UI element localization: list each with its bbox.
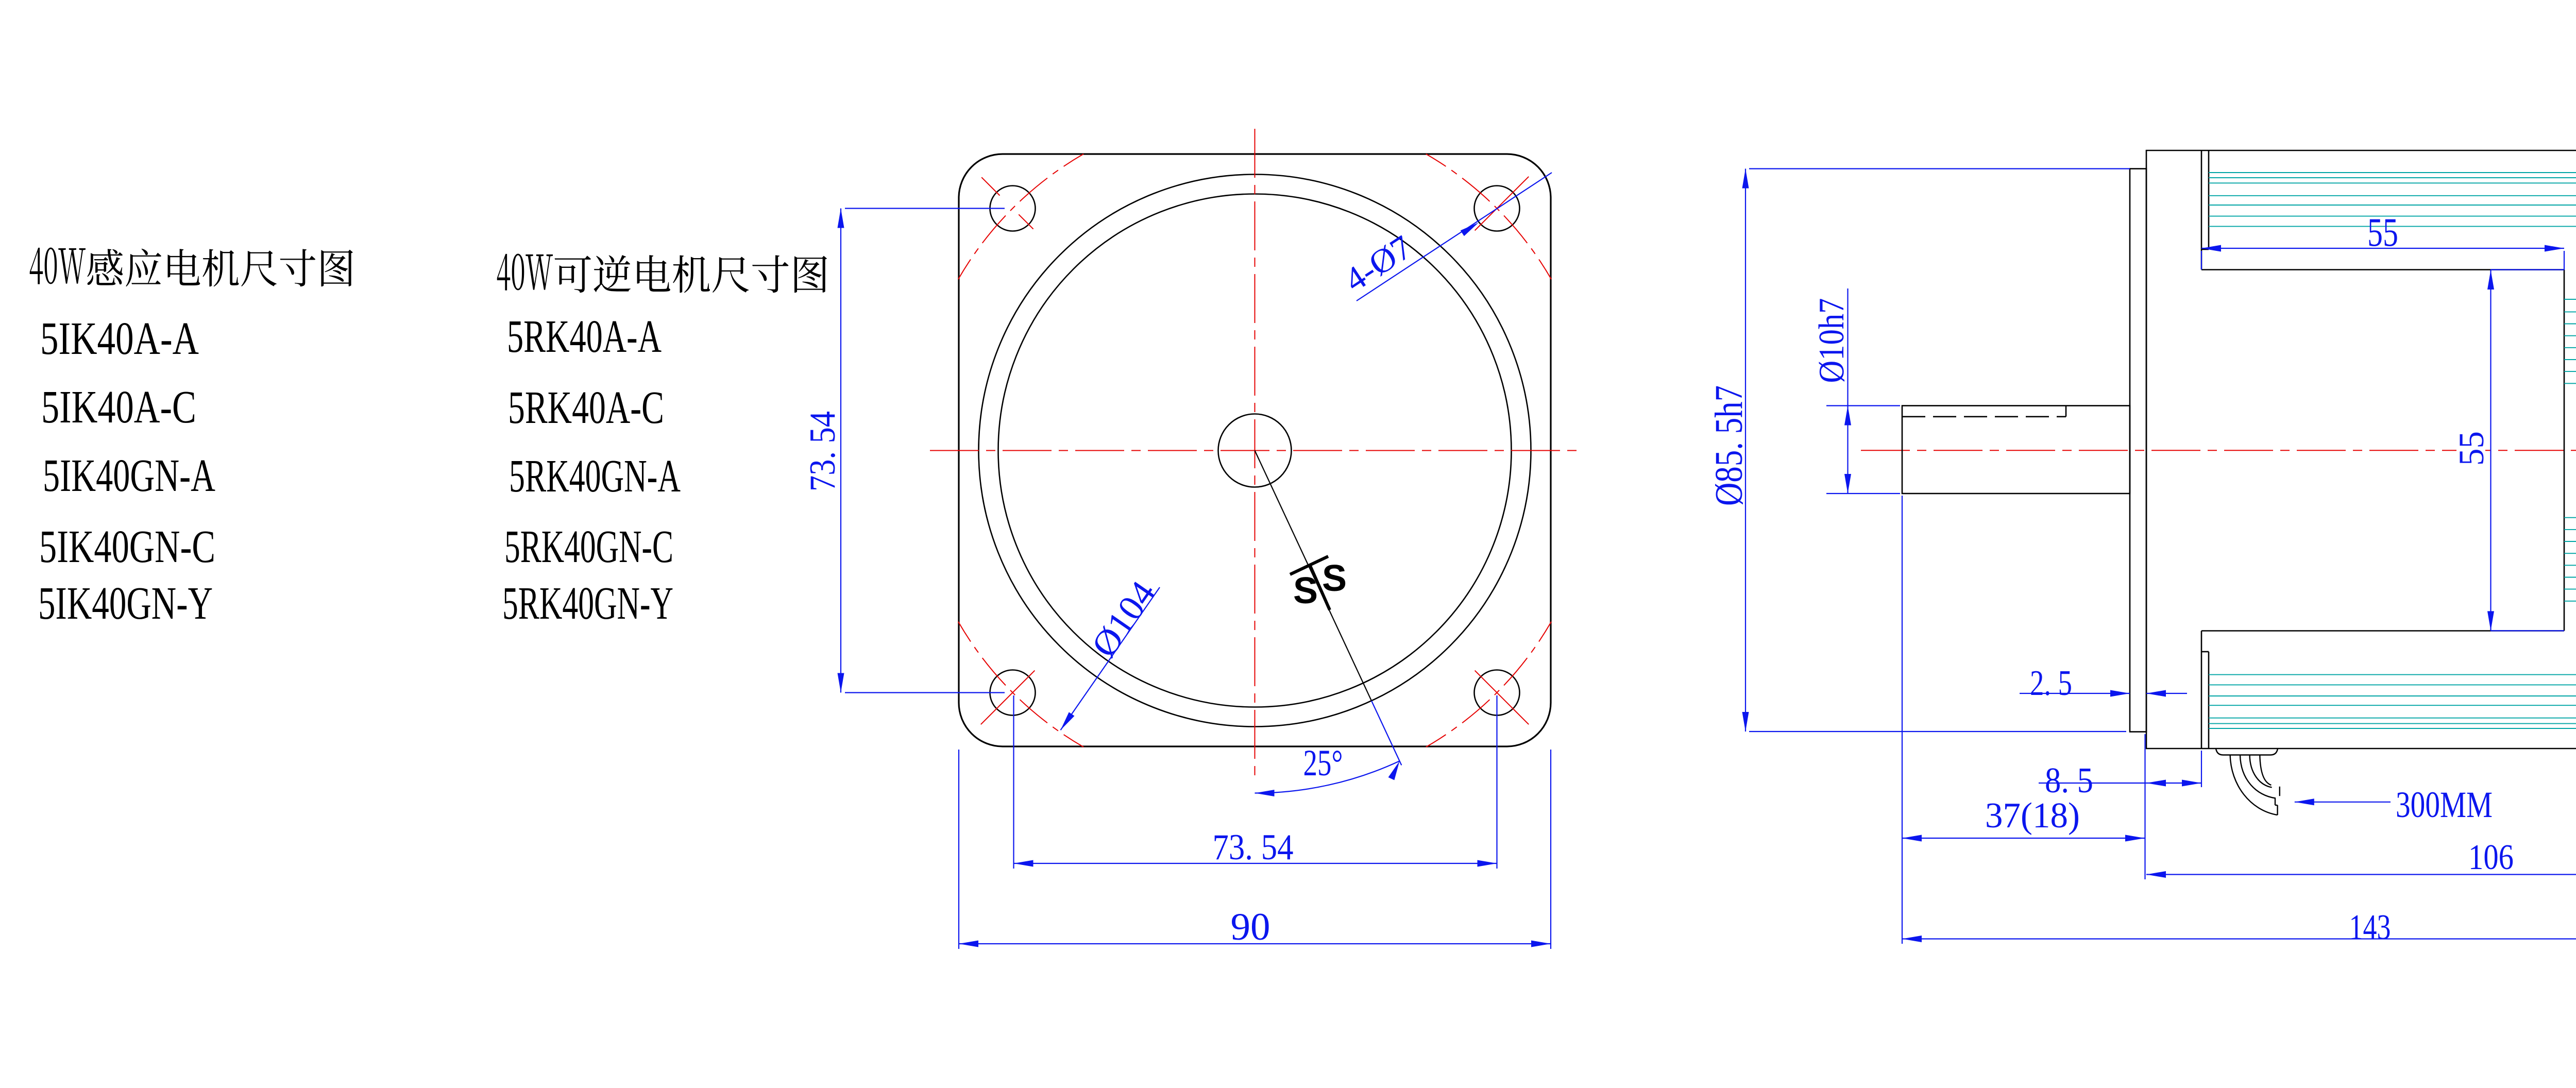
- svg-text:55: 55: [2367, 210, 2398, 254]
- svg-text:5RK40A-A: 5RK40A-A: [507, 311, 662, 362]
- svg-text:S: S: [1322, 558, 1347, 599]
- svg-text:5IK40GN-C: 5IK40GN-C: [39, 521, 215, 572]
- svg-text:8. 5: 8. 5: [2045, 761, 2093, 801]
- svg-text:5RK40GN-A: 5RK40GN-A: [509, 451, 681, 502]
- svg-text:5RK40GN-C: 5RK40GN-C: [504, 521, 673, 572]
- svg-text:5IK40GN-A: 5IK40GN-A: [43, 450, 215, 501]
- svg-text:106: 106: [2468, 838, 2514, 877]
- svg-text:5RK40A-C: 5RK40A-C: [508, 382, 664, 433]
- svg-text:25°: 25°: [1303, 742, 1343, 784]
- svg-text:S: S: [1293, 570, 1318, 611]
- svg-text:90: 90: [1231, 906, 1270, 948]
- svg-text:2. 5: 2. 5: [2030, 664, 2072, 703]
- svg-text:Ø85. 5h7: Ø85. 5h7: [1707, 385, 1751, 506]
- svg-text:55: 55: [2452, 431, 2491, 466]
- svg-text:37(18): 37(18): [1985, 796, 2080, 836]
- svg-text:5IK40A-C: 5IK40A-C: [41, 382, 196, 433]
- svg-text:5RK40GN-Y: 5RK40GN-Y: [502, 578, 673, 629]
- svg-text:143: 143: [2349, 908, 2391, 947]
- svg-text:5IK40GN-Y: 5IK40GN-Y: [38, 578, 213, 629]
- svg-text:5IK40A-A: 5IK40A-A: [40, 313, 199, 364]
- svg-text:73. 54: 73. 54: [803, 411, 843, 491]
- svg-text:73. 54: 73. 54: [1213, 827, 1294, 868]
- svg-text:Ø10h7: Ø10h7: [1812, 298, 1852, 383]
- svg-text:300MM: 300MM: [2396, 784, 2493, 825]
